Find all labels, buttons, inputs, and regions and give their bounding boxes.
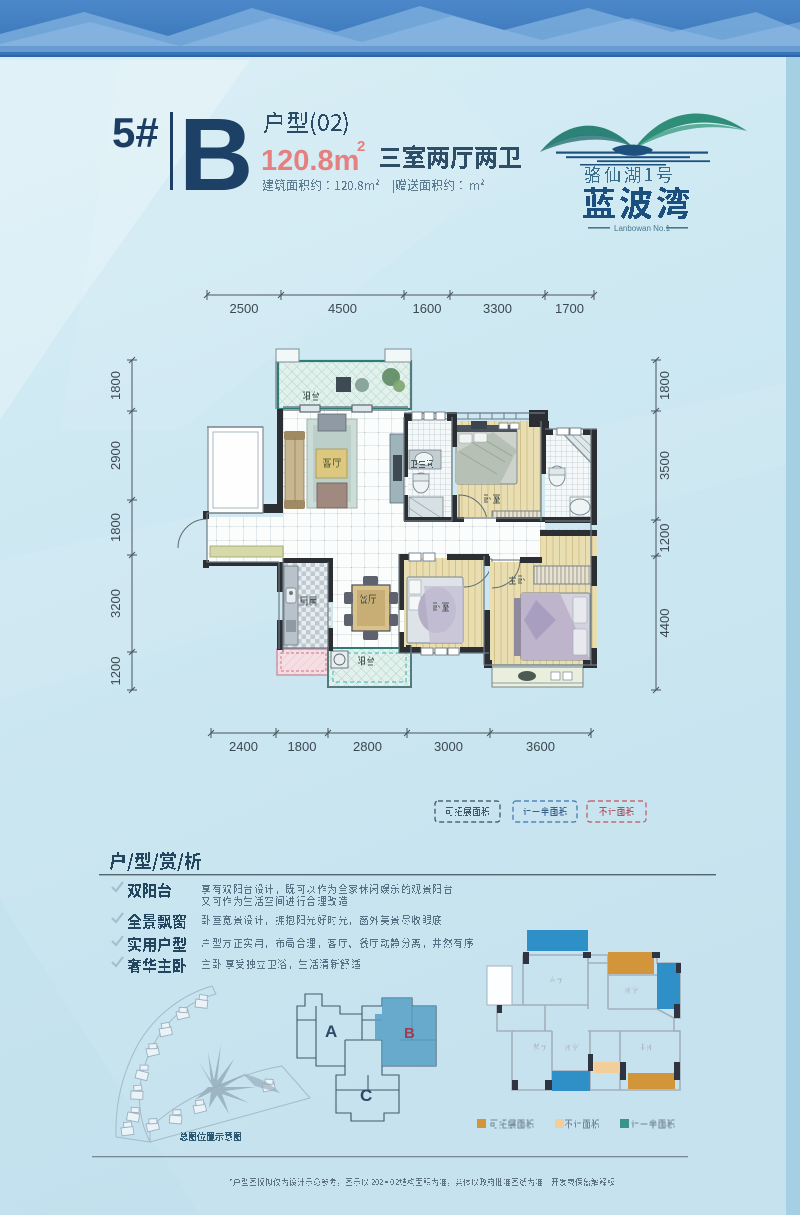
svg-text:120.8m: 120.8m [261,145,359,177]
svg-text:B: B [404,1025,415,1042]
svg-text:2400: 2400 [229,739,258,754]
svg-text:2500: 2500 [230,301,259,316]
svg-text:B: B [179,97,253,212]
svg-text:3500: 3500 [657,451,672,480]
svg-text:3200: 3200 [108,589,123,618]
svg-text:5#: 5# [112,109,159,156]
svg-text:4400: 4400 [657,609,672,638]
svg-text:3300: 3300 [483,301,512,316]
svg-text:3600: 3600 [526,739,555,754]
svg-text:1800: 1800 [657,371,672,400]
svg-text:2900: 2900 [108,441,123,470]
svg-text:1800: 1800 [288,739,317,754]
svg-text:Lanbowan No.1: Lanbowan No.1 [614,224,671,233]
svg-text:2: 2 [357,138,365,155]
svg-text:1600: 1600 [413,301,442,316]
svg-text:1200: 1200 [108,657,123,686]
svg-text:4500: 4500 [328,301,357,316]
svg-text:1200: 1200 [657,524,672,553]
svg-text:C: C [360,1086,372,1105]
svg-text:1800: 1800 [108,513,123,542]
svg-text:1800: 1800 [108,371,123,400]
svg-text:2800: 2800 [353,739,382,754]
svg-text:1700: 1700 [555,301,584,316]
svg-text:3000: 3000 [434,739,463,754]
svg-text:A: A [325,1022,337,1041]
